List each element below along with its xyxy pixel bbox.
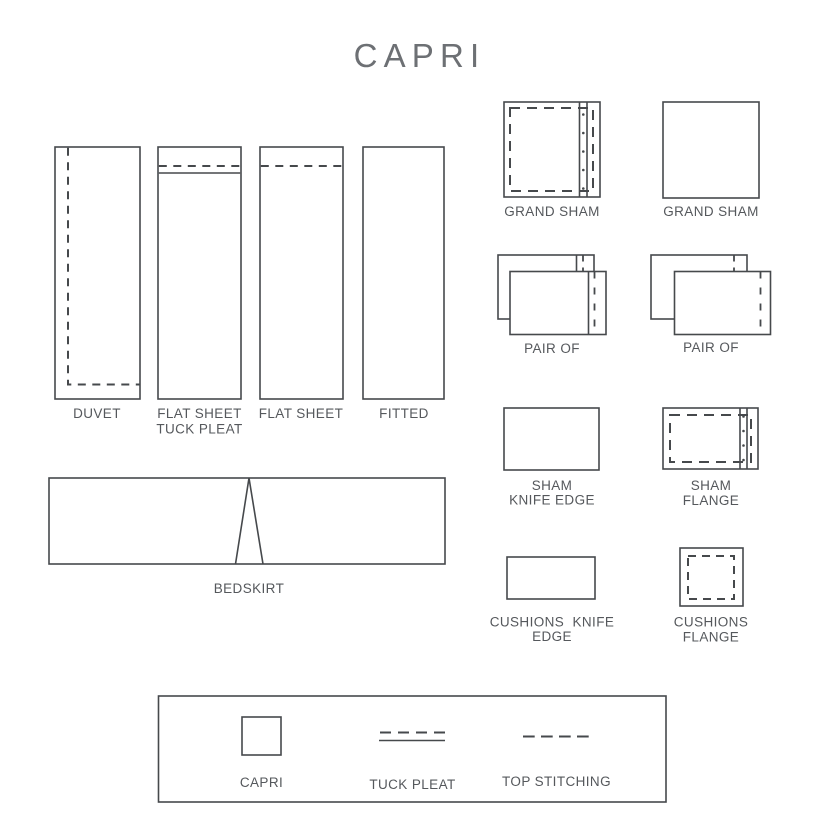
svg-text:BEDSKIRT: BEDSKIRT (214, 581, 284, 596)
svg-text:TUCK PLEAT: TUCK PLEAT (369, 777, 455, 792)
svg-text:TUCK PLEAT: TUCK PLEAT (156, 422, 242, 437)
svg-text:SHAM: SHAM (532, 478, 573, 493)
svg-text:FLAT SHEET: FLAT SHEET (157, 406, 242, 421)
svg-text:FITTED: FITTED (379, 406, 429, 421)
svg-text:FLANGE: FLANGE (683, 630, 739, 645)
svg-text:KNIFE EDGE: KNIFE EDGE (509, 493, 595, 508)
svg-text:CAPRI: CAPRI (354, 37, 486, 74)
svg-text:PAIR OF: PAIR OF (683, 340, 739, 355)
svg-text:EDGE: EDGE (532, 629, 572, 644)
svg-text:CAPRI: CAPRI (240, 775, 283, 790)
svg-text:FLANGE: FLANGE (683, 493, 739, 508)
svg-text:TOP STITCHING: TOP STITCHING (502, 774, 611, 789)
svg-text:FLAT SHEET: FLAT SHEET (259, 406, 344, 421)
svg-text:DUVET: DUVET (73, 406, 121, 421)
svg-text:SHAM: SHAM (691, 478, 732, 493)
svg-text:GRAND SHAM: GRAND SHAM (663, 204, 759, 219)
svg-text:PAIR OF: PAIR OF (524, 341, 580, 356)
svg-text:CUSHIONS: CUSHIONS (674, 615, 748, 630)
svg-text:CUSHIONS KNIFE: CUSHIONS KNIFE (490, 615, 615, 630)
svg-text:GRAND SHAM: GRAND SHAM (504, 204, 600, 219)
